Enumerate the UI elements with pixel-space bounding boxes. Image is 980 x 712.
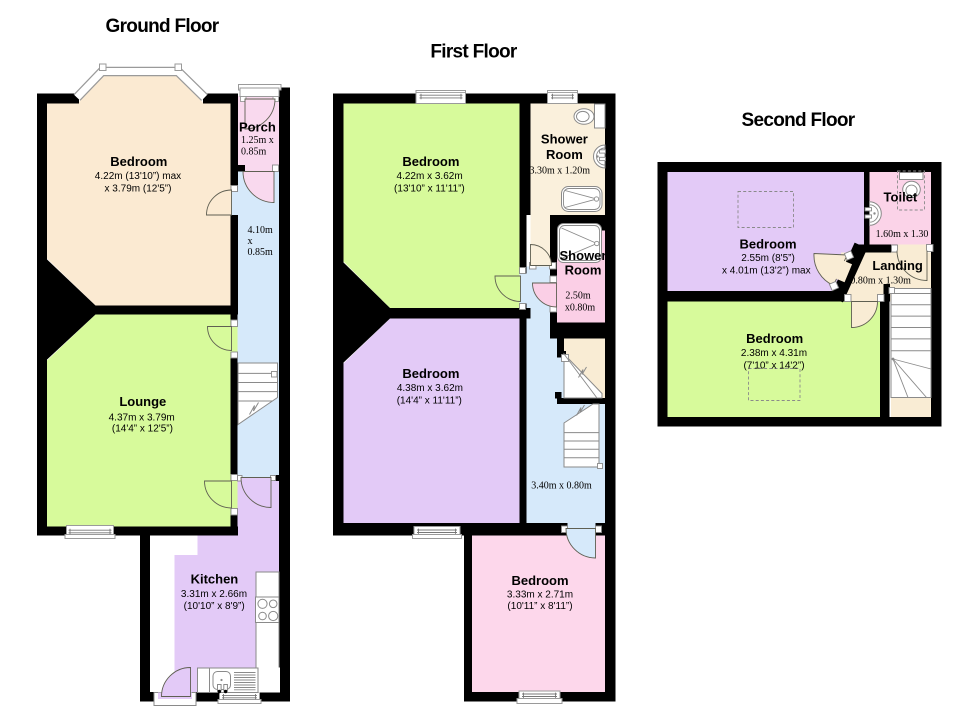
svg-text:x0.80m: x0.80m bbox=[565, 303, 596, 314]
svg-text:Bedroom: Bedroom bbox=[511, 573, 568, 588]
svg-text:First Floor: First Floor bbox=[430, 42, 518, 63]
svg-text:2.50m: 2.50m bbox=[565, 291, 591, 302]
svg-text:0.85m: 0.85m bbox=[241, 147, 267, 158]
svg-text:0.80m x 1.30m: 0.80m x 1.30m bbox=[850, 276, 911, 287]
svg-text:3.31m x 2.66m: 3.31m x 2.66m bbox=[181, 589, 247, 600]
svg-text:Shower: Shower bbox=[541, 131, 588, 146]
svg-text:Second Floor: Second Floor bbox=[742, 110, 856, 131]
svg-text:Kitchen: Kitchen bbox=[191, 571, 239, 586]
svg-text:Bedroom: Bedroom bbox=[402, 154, 459, 169]
svg-text:4.22m x 3.62m: 4.22m x 3.62m bbox=[397, 171, 463, 182]
svg-text:(10'10” x 8'9”): (10'10” x 8'9”) bbox=[184, 601, 245, 612]
svg-text:(13'10” x 11'11”): (13'10” x 11'11”) bbox=[394, 183, 465, 194]
svg-text:4.37m x 3.79m: 4.37m x 3.79m bbox=[109, 412, 175, 423]
svg-text:1.25m x: 1.25m x bbox=[241, 135, 274, 146]
svg-text:(7'10” x 14'2”): (7'10” x 14'2”) bbox=[743, 360, 804, 371]
svg-text:4.22m (13'10”) max: 4.22m (13'10”) max bbox=[95, 171, 181, 182]
svg-text:Ground Floor: Ground Floor bbox=[106, 16, 220, 37]
svg-text:3.33m x 2.71m: 3.33m x 2.71m bbox=[507, 589, 573, 600]
svg-text:x 4.01m (13'2”) max: x 4.01m (13'2”) max bbox=[722, 265, 811, 276]
svg-text:Bedroom: Bedroom bbox=[746, 331, 803, 346]
svg-text:Bedroom: Bedroom bbox=[739, 237, 796, 252]
svg-text:Bedroom: Bedroom bbox=[402, 366, 459, 381]
svg-text:(10'11” x 8'11”): (10'11” x 8'11”) bbox=[507, 601, 572, 612]
svg-text:4.10m: 4.10m bbox=[248, 225, 274, 236]
svg-text:1.60m x 1.30: 1.60m x 1.30 bbox=[876, 229, 929, 240]
svg-text:3.40m x 0.80m: 3.40m x 0.80m bbox=[531, 480, 592, 491]
svg-text:Shower: Shower bbox=[560, 248, 607, 263]
svg-text:x: x bbox=[248, 236, 253, 247]
svg-text:x 3.79m (12'5”): x 3.79m (12'5”) bbox=[105, 183, 172, 194]
svg-text:4.38m x 3.62m: 4.38m x 3.62m bbox=[397, 383, 463, 394]
svg-text:Room: Room bbox=[546, 147, 583, 162]
svg-text:Porch: Porch bbox=[239, 120, 276, 135]
svg-text:(14'4” x 12'5”): (14'4” x 12'5”) bbox=[112, 424, 173, 435]
svg-text:2.55m (8'5”): 2.55m (8'5”) bbox=[741, 253, 795, 264]
svg-text:(14'4” x 11'11”): (14'4” x 11'11”) bbox=[397, 395, 462, 406]
svg-text:0.85m: 0.85m bbox=[248, 247, 274, 258]
svg-text:2.38m x 4.31m: 2.38m x 4.31m bbox=[741, 348, 807, 359]
svg-text:Landing: Landing bbox=[872, 258, 923, 273]
svg-text:3.30m x 1.20m: 3.30m x 1.20m bbox=[530, 166, 591, 177]
svg-text:Lounge: Lounge bbox=[119, 394, 166, 409]
svg-text:Bedroom: Bedroom bbox=[110, 154, 167, 169]
svg-text:Toilet: Toilet bbox=[884, 189, 918, 204]
svg-text:Room: Room bbox=[565, 263, 602, 278]
